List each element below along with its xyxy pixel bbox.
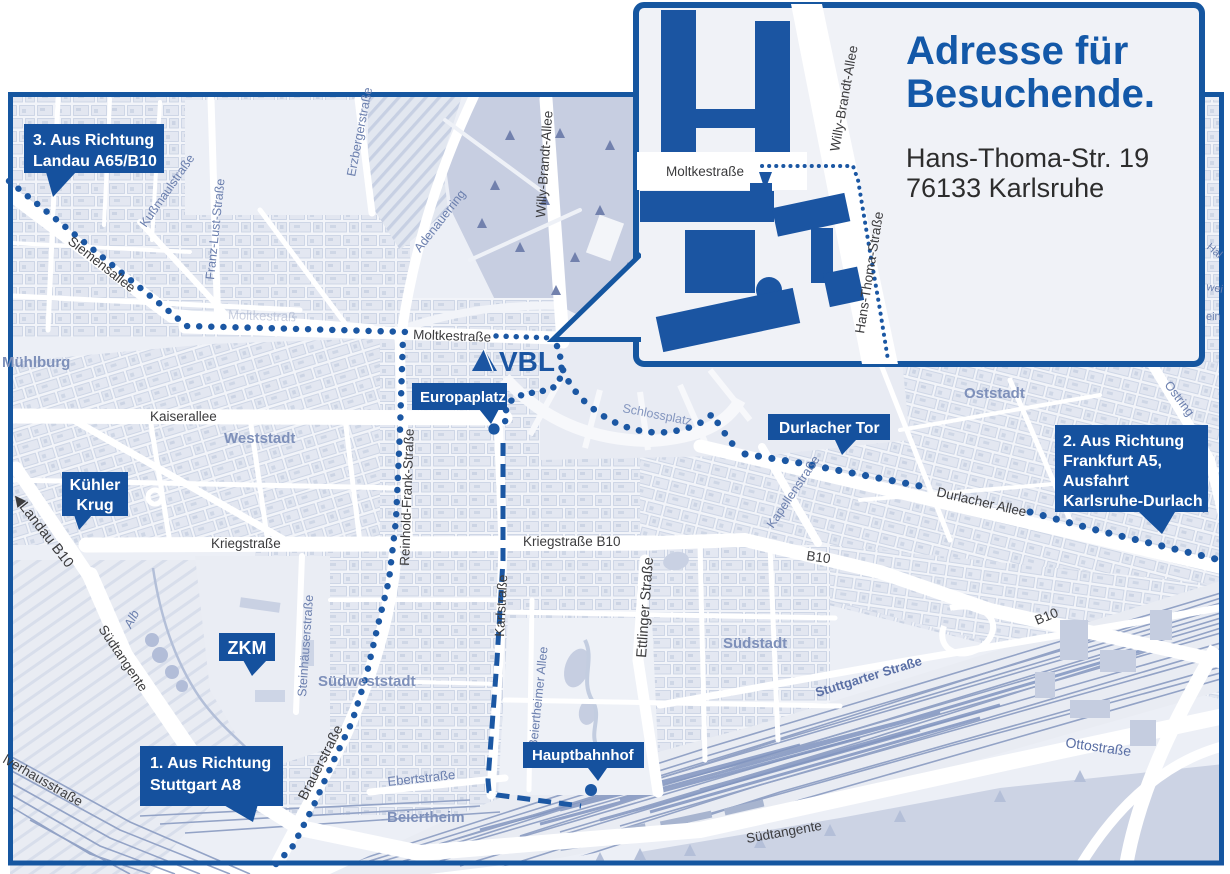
svg-text:Karlsruhe-Durlach: Karlsruhe-Durlach: [1063, 493, 1203, 510]
svg-text:ein: ein: [1206, 311, 1221, 323]
svg-text:Hans-Thoma-Str. 19: Hans-Thoma-Str. 19: [906, 143, 1149, 173]
svg-text:Krug: Krug: [76, 497, 113, 514]
svg-text:Beiertheim: Beiertheim: [387, 809, 465, 826]
svg-text:Mühlburg: Mühlburg: [2, 354, 70, 371]
svg-text:Kriegstraße B10: Kriegstraße B10: [523, 534, 621, 549]
svg-text:Landau A65/B10: Landau A65/B10: [33, 153, 157, 170]
svg-text:Kaiserallee: Kaiserallee: [150, 409, 217, 424]
svg-text:Kühler: Kühler: [70, 477, 121, 494]
svg-text:Moltkestraße: Moltkestraße: [666, 164, 744, 179]
svg-text:Frankfurt A5,: Frankfurt A5,: [1063, 453, 1162, 470]
svg-text:Hauptbahnhof: Hauptbahnhof: [532, 747, 635, 764]
svg-text:Oststadt: Oststadt: [964, 385, 1025, 402]
svg-text:VBL: VBL: [499, 346, 555, 377]
svg-text:Südstadt: Südstadt: [723, 635, 787, 652]
svg-text:3. Aus Richtung: 3. Aus Richtung: [33, 132, 154, 149]
svg-text:Moltkestraß: Moltkestraß: [228, 307, 296, 324]
svg-text:Moltkestraße: Moltkestraße: [413, 327, 492, 345]
svg-text:Adresse für: Adresse für: [906, 29, 1128, 73]
svg-text:1. Aus Richtung: 1. Aus Richtung: [150, 755, 271, 772]
svg-text:Europaplatz: Europaplatz: [420, 389, 506, 406]
svg-text:Besuchende.: Besuchende.: [906, 72, 1155, 116]
svg-text:Südweststadt: Südweststadt: [318, 673, 416, 690]
svg-text:ZKM: ZKM: [228, 638, 267, 658]
svg-text:Durlacher Tor: Durlacher Tor: [779, 420, 880, 437]
svg-text:2. Aus Richtung: 2. Aus Richtung: [1063, 433, 1184, 450]
svg-text:Ausfahrt: Ausfahrt: [1063, 473, 1129, 490]
svg-text:Weststadt: Weststadt: [224, 430, 295, 447]
svg-text:Stuttgart A8: Stuttgart A8: [150, 777, 241, 794]
svg-text:76133 Karlsruhe: 76133 Karlsruhe: [906, 173, 1104, 203]
svg-text:Kriegstraße: Kriegstraße: [211, 536, 281, 551]
